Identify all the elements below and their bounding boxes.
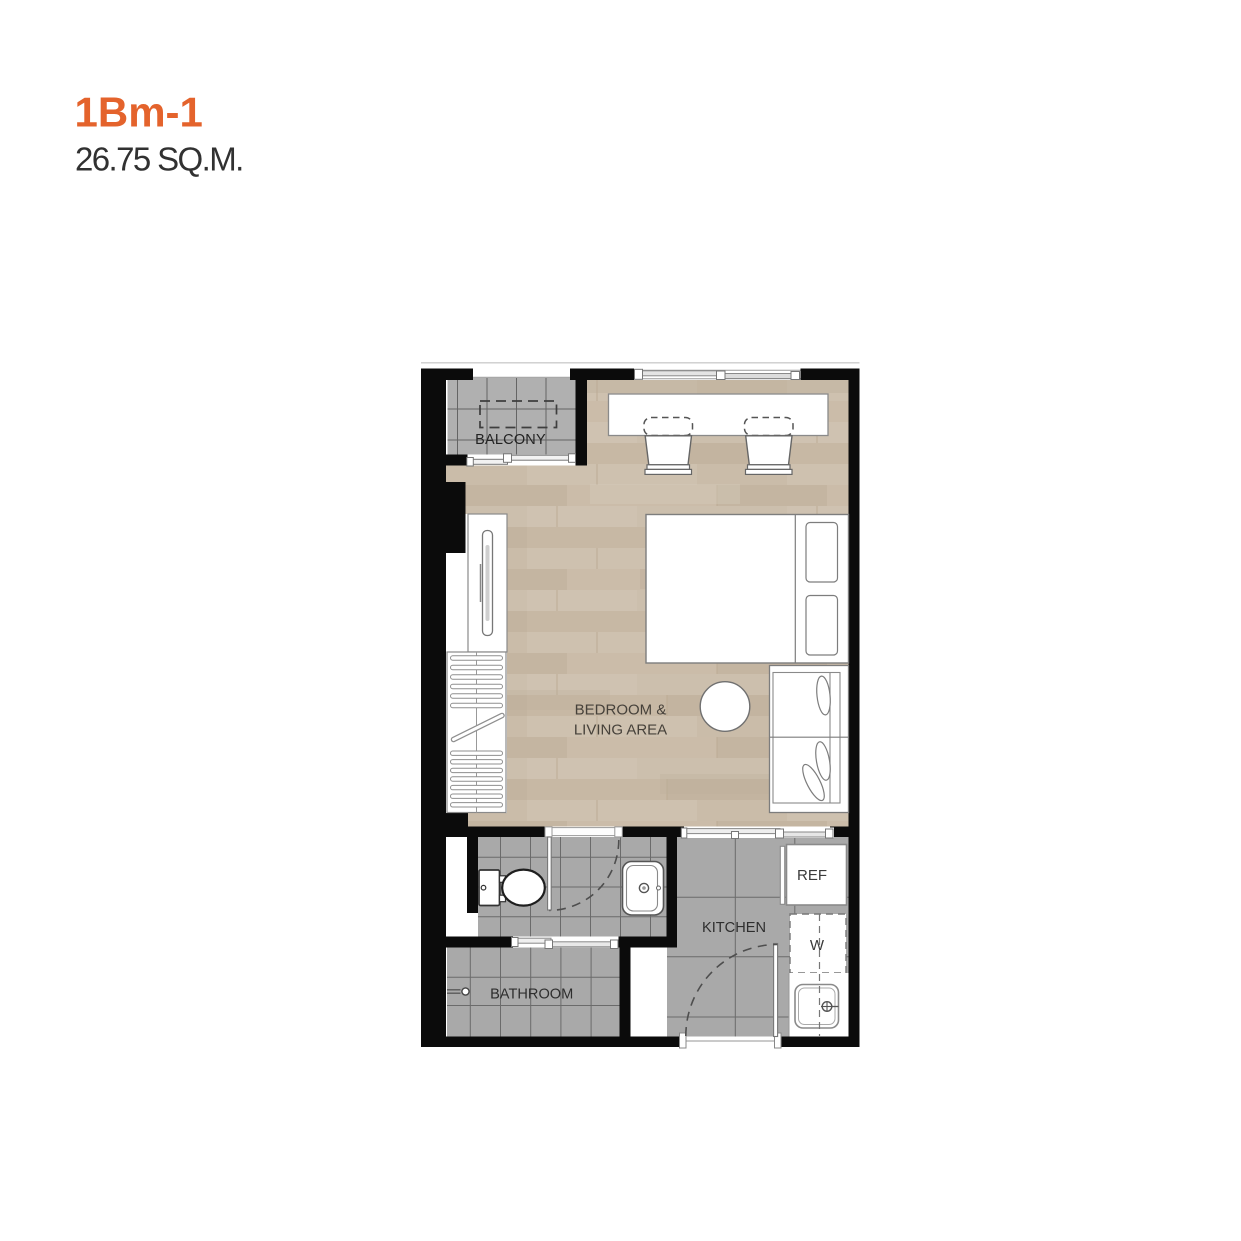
svg-text:26.75 SQ.M.: 26.75 SQ.M. [75,141,243,178]
svg-text:BEDROOM &: BEDROOM & [575,702,667,719]
svg-text:REF: REF [797,867,827,884]
svg-text:W: W [810,937,825,954]
svg-text:LIVING AREA: LIVING AREA [574,722,667,739]
svg-text:BALCONY: BALCONY [475,432,546,448]
svg-text:KITCHEN: KITCHEN [702,920,766,936]
svg-text:BATHROOM: BATHROOM [490,987,573,1003]
svg-text:1Bm-1: 1Bm-1 [75,89,203,136]
